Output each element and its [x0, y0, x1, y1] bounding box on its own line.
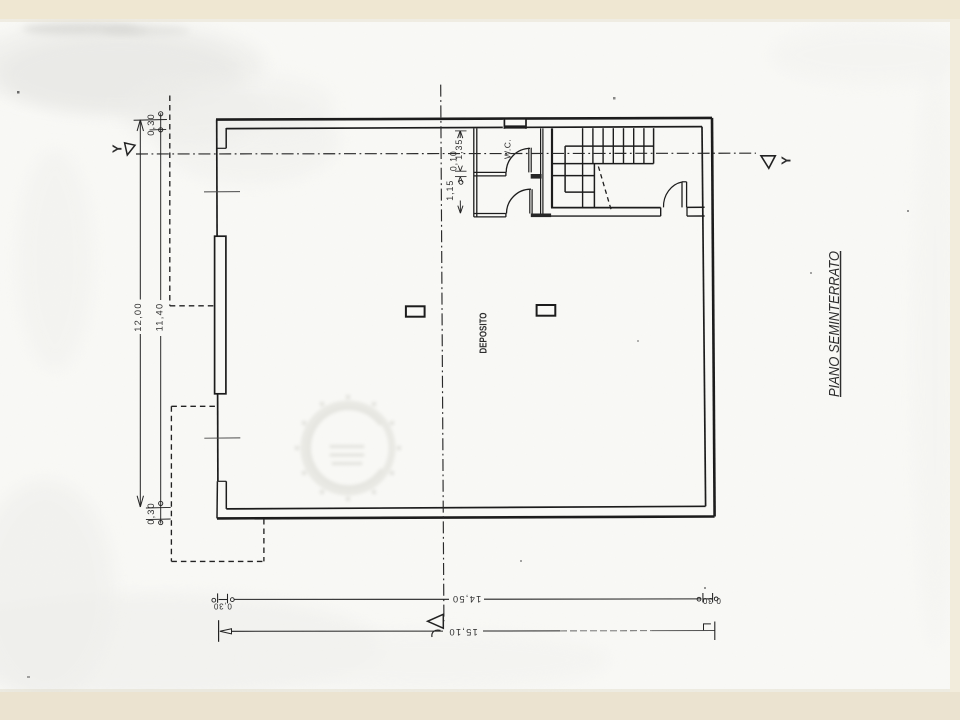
svg-text:0,30: 0,30	[702, 596, 721, 605]
svg-text:PIANO SEMINTERRATO: PIANO SEMINTERRATO	[827, 251, 843, 397]
svg-text:11,40: 11,40	[155, 303, 165, 332]
svg-text:0,30: 0,30	[213, 601, 232, 610]
svg-text:Y: Y	[110, 144, 125, 153]
svg-text:1,15: 1,15	[445, 180, 455, 201]
svg-text:W.C.: W.C.	[503, 139, 513, 159]
svg-text:0,30: 0,30	[146, 502, 156, 525]
svg-text:15,10: 15,10	[448, 627, 478, 637]
svg-text:14,50: 14,50	[452, 594, 482, 604]
svg-text:DEPOSITO: DEPOSITO	[478, 313, 490, 354]
svg-text:Y: Y	[778, 156, 793, 165]
svg-text:12,00: 12,00	[133, 302, 143, 332]
svg-text:0,30: 0,30	[146, 113, 156, 136]
svg-text:0,10: 0,10	[448, 150, 458, 171]
